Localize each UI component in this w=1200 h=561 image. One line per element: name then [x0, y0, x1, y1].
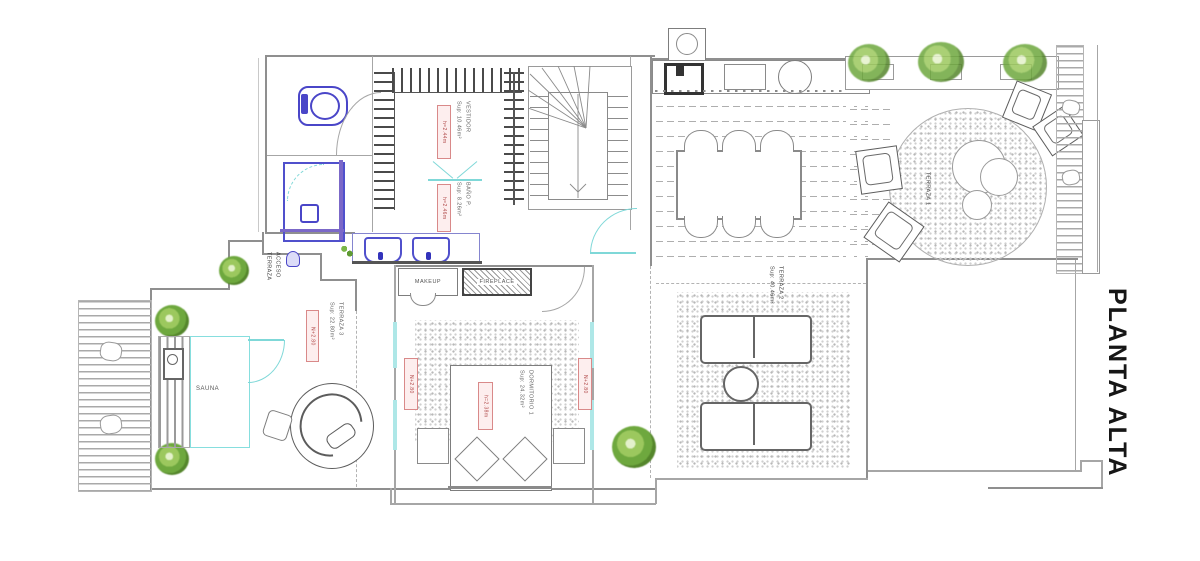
spa-circle-mid: [980, 158, 1018, 196]
closet-door-leaf-left: [433, 161, 454, 178]
bay-bottom: [390, 503, 656, 505]
sauna-glass-front: [190, 336, 250, 448]
fireplace: FIREPLACE: [462, 268, 532, 296]
dining-chair: [760, 130, 794, 152]
bath-height-tag: h=2.46m: [437, 184, 451, 232]
lounger-divider: [753, 317, 755, 358]
wall-terrace-bottom: [868, 470, 1080, 472]
bedroom-window-left-2: [393, 400, 397, 450]
round-chair-back: [287, 381, 376, 470]
sauna-door-leaf: [248, 339, 284, 341]
closet-label: VESTIDOR Sup: 10.46m²: [453, 101, 472, 165]
side-table-hex: [261, 409, 293, 442]
nightstand: [417, 428, 449, 464]
wall-step-4: [320, 279, 357, 281]
sun-lounger: [700, 315, 812, 364]
counter-edge-dots: [655, 90, 845, 92]
bedroom-window-left-1: [393, 322, 397, 368]
wall-wing-top-a: [228, 240, 264, 242]
bath-label: BAÑO P. Sup: 8.26m²: [453, 182, 472, 238]
closet-door-sill: [428, 179, 482, 181]
wall-bedroom-right: [592, 265, 594, 505]
bush-icon: [612, 426, 656, 468]
makeup-label: MAKEUP: [415, 279, 441, 285]
bed-height-tag: h=2.38m: [478, 382, 493, 430]
sauna-label: SAUNA: [196, 386, 219, 392]
sun-lounger: [700, 402, 812, 451]
terrace-access-label: ACCESO TERRAZA: [263, 252, 282, 304]
bedroom-door-arc: [542, 267, 585, 312]
wall-terrace-right-strip: [1075, 260, 1076, 470]
sauna-heater-coil: [167, 354, 178, 365]
chimney-vent-icon: [676, 33, 698, 55]
bush-icon: [219, 256, 249, 285]
bay-left: [390, 488, 392, 504]
shower-drain: [300, 204, 319, 223]
toilet-tank: [301, 94, 308, 114]
wall-bottom-main: [150, 488, 656, 490]
step-edge-1: [1080, 460, 1082, 472]
faucet-left-icon: [378, 252, 383, 260]
nightstand: [553, 428, 585, 464]
closet-rail-left: [394, 72, 395, 210]
bed-headboard: [448, 486, 552, 489]
deck-outer-line: [1097, 45, 1098, 272]
hall-door-arc: [590, 208, 637, 254]
cooktop: [724, 64, 766, 90]
closet-rail-top: [392, 92, 522, 93]
toilet-bowl: [310, 92, 340, 120]
closet-height-tag: h=2.44m: [437, 105, 451, 159]
stair-winder-lines: [528, 66, 630, 208]
stove-knob: [676, 66, 684, 76]
closet-rack-top: [392, 68, 522, 92]
bed-right-level-tag: N+2.80: [578, 358, 592, 410]
floor-plan: h=2.44m VESTIDOR Sup: 10.46m² h=2.46m BA…: [0, 0, 1200, 561]
bay-right: [655, 478, 657, 504]
sauna-door-arc: [248, 340, 285, 383]
vanity-plant-icon: [340, 244, 354, 260]
terrace2-top-dash: [656, 283, 866, 284]
shower-wall-purple: [339, 160, 343, 240]
makeup-stool: [410, 293, 436, 306]
planter-plant-icon: [918, 42, 964, 82]
bedroom-label: DORMITORIO 1 Sup: 24.32m²: [516, 370, 535, 436]
vanity-sink-left: [364, 237, 402, 263]
closet-rod-right: [513, 72, 515, 205]
hall-door-leaf: [590, 252, 636, 254]
faucet-right-icon: [426, 252, 431, 260]
lounger-side-table: [723, 366, 759, 402]
bush-icon: [155, 305, 189, 337]
step-edge-4: [988, 487, 1103, 489]
terrace1-deck: [1056, 45, 1084, 274]
plan-title: PLANTA ALTA: [1102, 288, 1131, 498]
closet-rack-left: [374, 72, 394, 210]
vanity-sink-right: [412, 237, 450, 263]
wall-step-3: [320, 253, 322, 281]
bed: [450, 365, 552, 491]
wall-bath-left: [265, 55, 267, 232]
bed-left-level-tag: N+2.80: [404, 358, 418, 410]
terrace3-label: TERRAZA 3 Sup: 22.80m²: [326, 302, 345, 366]
wall-wc-shower: [267, 155, 373, 156]
dining-chair: [722, 130, 756, 152]
outer-offset-line: [258, 58, 259, 232]
spa-circle-small: [962, 190, 992, 220]
planter-plant-icon: [848, 44, 890, 82]
lounge-level-tag: N+2.80: [306, 310, 319, 362]
makeup-desk: MAKEUP: [398, 268, 458, 296]
step-edge-2: [1080, 460, 1102, 462]
wall-step-5: [355, 279, 357, 311]
dining-table: [676, 150, 802, 220]
sprinkler-icon: [286, 251, 300, 267]
kitchen-sink: [778, 60, 812, 94]
wall-wing-top-b: [150, 288, 230, 290]
terrace-armchair: [855, 145, 903, 194]
lounger-divider: [753, 404, 755, 445]
planter-plant-icon: [1003, 44, 1047, 82]
shower-bottom-line: [280, 229, 344, 232]
wall-terrace2-right: [866, 260, 868, 480]
fireplace-label: FIREPLACE: [477, 279, 516, 285]
wall-top: [265, 55, 655, 57]
terrace2-bottom: [655, 478, 868, 480]
left-deck: [78, 300, 152, 492]
vanity-counter: [352, 261, 482, 264]
wall-bedroom-left: [394, 265, 396, 505]
terrace2-label: TERRAZA 2 Sup: 40.46m²: [766, 266, 785, 342]
dining-chair: [684, 130, 718, 152]
